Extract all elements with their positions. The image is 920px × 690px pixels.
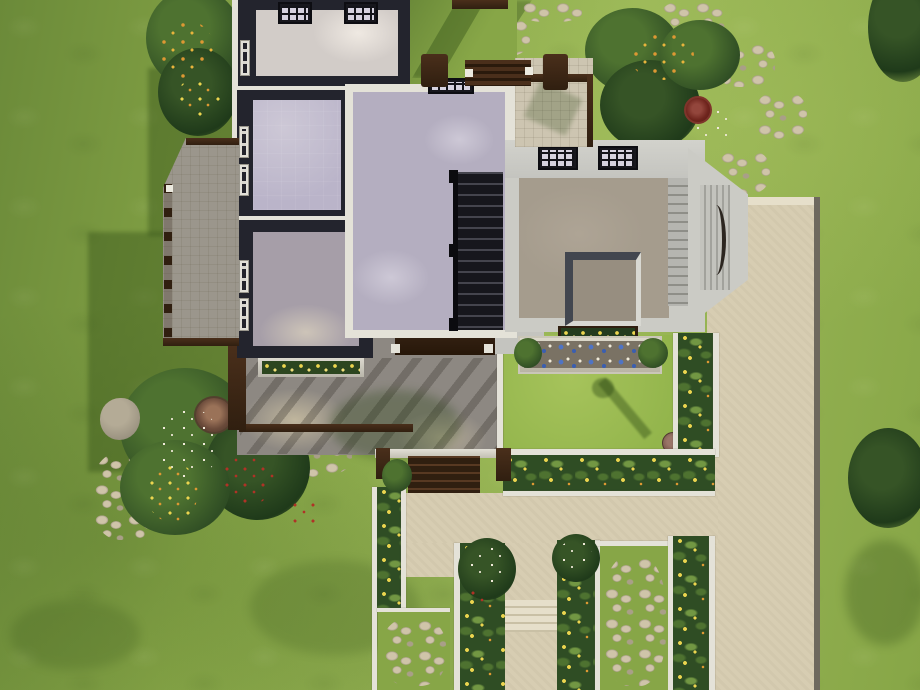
bed-edge bbox=[709, 536, 715, 690]
tree-shadow-bottom-right bbox=[845, 540, 920, 645]
bush-white-blooms bbox=[466, 545, 508, 585]
tree-canopy-east bbox=[848, 428, 920, 528]
game-world-viewport[interactable] bbox=[0, 0, 920, 690]
garden-stones-west bbox=[382, 618, 446, 686]
deck-post-cap-light bbox=[465, 69, 473, 77]
hedge-bed-horizontal[interactable] bbox=[503, 455, 715, 493]
hedge-bed-east-vertical[interactable] bbox=[678, 333, 714, 457]
room-west-upper-floor[interactable] bbox=[253, 100, 341, 210]
stair-newel bbox=[449, 244, 458, 257]
orange-wildflowers bbox=[158, 20, 214, 78]
west-deck[interactable] bbox=[163, 138, 239, 346]
orange-wildflowers bbox=[630, 32, 694, 80]
skylight[interactable] bbox=[278, 2, 312, 24]
window-west-wall[interactable] bbox=[239, 298, 249, 331]
stepping-stones-top-center-1 bbox=[520, 0, 582, 22]
pergola-beam-top bbox=[452, 0, 508, 9]
garden-walk-steps[interactable] bbox=[503, 600, 557, 632]
bed-edge bbox=[713, 333, 719, 457]
red-wildflowers bbox=[222, 448, 274, 506]
lawn-planter-blue-flowers bbox=[524, 341, 656, 368]
bush-white-blooms bbox=[558, 540, 592, 572]
garden-stones-east bbox=[602, 556, 666, 686]
shrub-by-steps[interactable] bbox=[382, 459, 412, 492]
west-deck-railing[interactable] bbox=[164, 184, 172, 344]
porch-railing-west[interactable] bbox=[239, 350, 246, 432]
stepping-stones-top-3 bbox=[755, 92, 807, 140]
hedge-bed-west-vertical[interactable] bbox=[377, 487, 403, 610]
roof-window[interactable] bbox=[538, 146, 578, 170]
window-west-wall[interactable] bbox=[240, 40, 250, 76]
outdoor-bench[interactable] bbox=[465, 60, 531, 86]
bay-door-handle-arc[interactable] bbox=[706, 205, 726, 275]
pergola-post-cap bbox=[391, 344, 400, 353]
roof-window[interactable] bbox=[598, 146, 638, 170]
tree-shadow-left-edge bbox=[10, 600, 140, 670]
open-shaft bbox=[565, 252, 641, 326]
lamppost-shadow-head bbox=[592, 378, 614, 398]
planter-end-foliage bbox=[514, 338, 542, 368]
porch-window-box-flowers bbox=[262, 361, 360, 374]
red-round-flower[interactable] bbox=[684, 96, 712, 124]
porch-railing-south[interactable] bbox=[243, 424, 413, 432]
stair-newel bbox=[449, 170, 458, 183]
hedge-bed-far-east[interactable] bbox=[673, 536, 710, 690]
porch-steps[interactable] bbox=[408, 456, 480, 493]
wall-shelf-unit[interactable] bbox=[668, 178, 688, 306]
staircase[interactable] bbox=[453, 172, 503, 330]
planter-end-foliage bbox=[638, 338, 668, 368]
window-west-wall[interactable] bbox=[239, 126, 249, 158]
bush-red-berries bbox=[468, 588, 490, 608]
yellow-wildflowers bbox=[146, 462, 198, 522]
outdoor-chair[interactable] bbox=[543, 54, 568, 90]
deck-post-cap-light bbox=[525, 67, 533, 75]
yellow-wildflowers bbox=[176, 78, 220, 118]
pergola-post[interactable] bbox=[496, 448, 511, 481]
west-deck-railing-top[interactable] bbox=[186, 138, 239, 145]
skylight[interactable] bbox=[344, 2, 378, 24]
window-west-wall[interactable] bbox=[239, 164, 249, 196]
stair-newel bbox=[449, 318, 458, 331]
west-deck-edge-south bbox=[163, 338, 239, 346]
northeast-deck-railing-east[interactable] bbox=[587, 74, 593, 147]
window-west-wall[interactable] bbox=[239, 260, 249, 293]
bed-edge bbox=[503, 491, 715, 496]
red-wildflowers bbox=[290, 500, 320, 526]
driveway-curb bbox=[814, 197, 820, 690]
garden-walk-pocket[interactable] bbox=[406, 543, 454, 577]
pergola-post-cap bbox=[484, 344, 493, 353]
bed-edge bbox=[401, 487, 406, 610]
room-west-lower-floor[interactable] bbox=[253, 232, 359, 346]
deck-post-cap-light bbox=[166, 185, 173, 192]
outdoor-chair[interactable] bbox=[421, 54, 448, 87]
